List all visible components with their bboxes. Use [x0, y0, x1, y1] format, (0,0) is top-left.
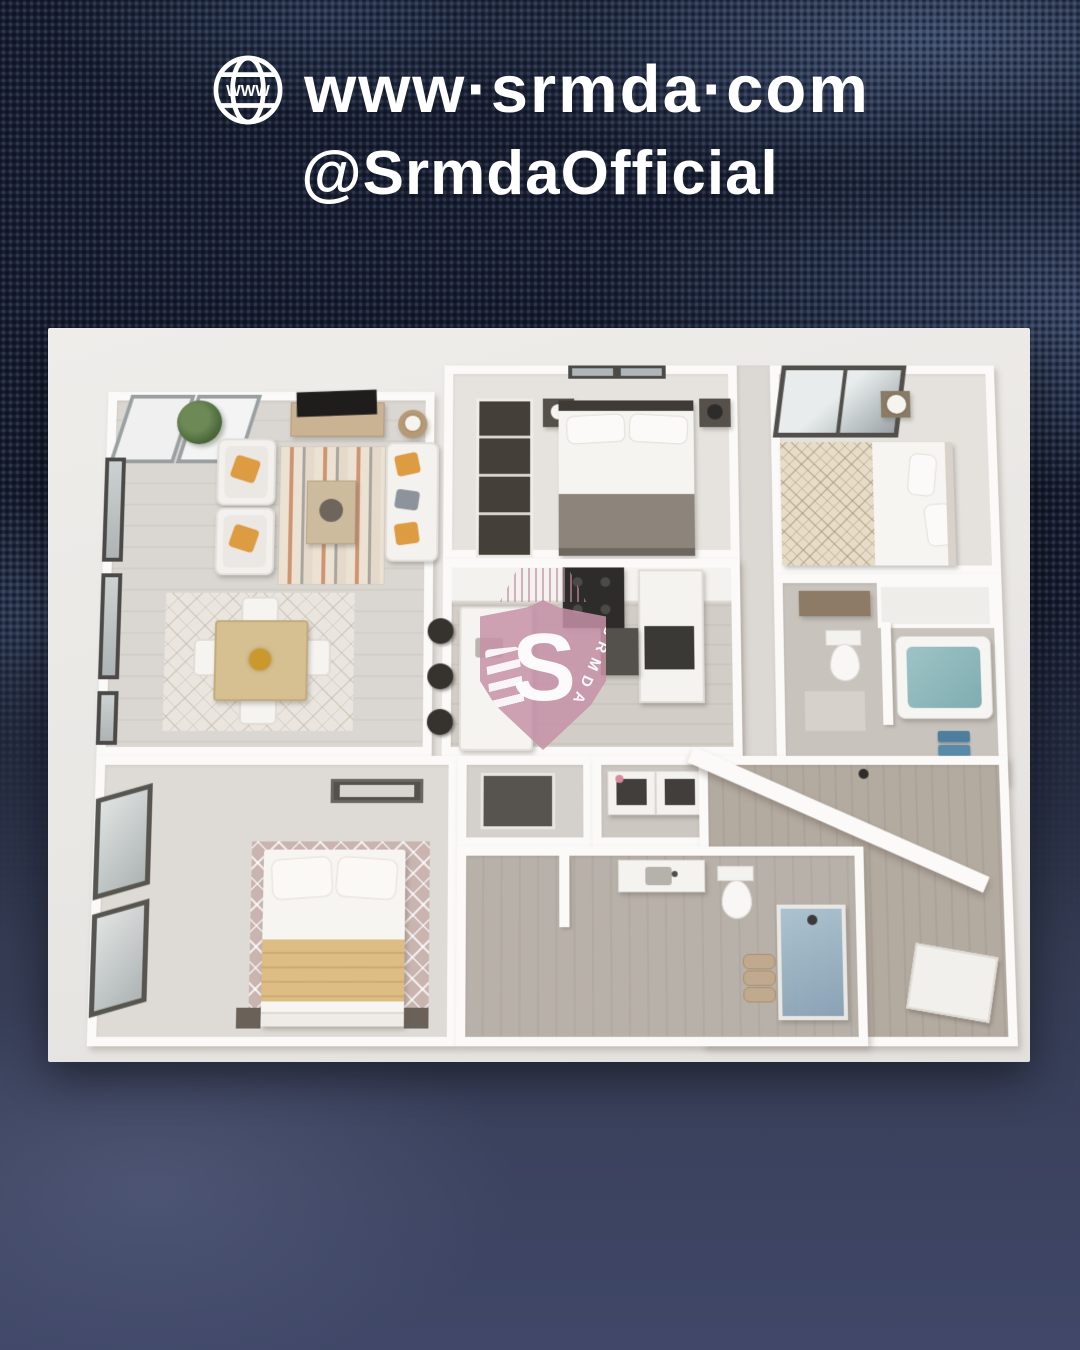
bathroom-partition-wall: [559, 856, 569, 927]
rolled-towel: [743, 954, 776, 969]
wardrobe-shelf: [479, 436, 530, 439]
pillow: [628, 413, 688, 445]
headboard: [559, 400, 694, 410]
slanted-window: [89, 898, 150, 1018]
svg-text:WWW: WWW: [226, 83, 270, 100]
gold-centerpiece: [249, 649, 271, 671]
wardrobe-shelf: [479, 474, 530, 477]
bar-stool: [427, 709, 453, 735]
tub-water: [906, 647, 982, 708]
table-tray: [319, 499, 343, 522]
wardrobe: [476, 399, 533, 558]
gray-blanket: [559, 494, 695, 548]
bed: [260, 850, 405, 1027]
left-window: [98, 573, 122, 679]
bedroom-2: [770, 366, 1001, 575]
faucet: [672, 871, 678, 877]
sliding-closet-door: [480, 773, 555, 829]
pillow: [271, 856, 334, 901]
ceiling-light: [331, 779, 424, 803]
bath-mat: [805, 691, 866, 731]
toilet: [721, 880, 752, 919]
bathroom-2: [456, 847, 868, 1047]
website-url: www·srmda·com: [304, 53, 870, 127]
rolled-towel: [743, 970, 776, 986]
wardrobe-shelf: [479, 512, 530, 515]
coffee-table: [306, 481, 356, 545]
closet: [457, 756, 592, 847]
window-glass: [572, 368, 613, 376]
bedroom-window: [568, 366, 666, 379]
burner: [600, 577, 610, 587]
bed: [780, 442, 956, 565]
footboard: [559, 548, 695, 556]
living-room: [96, 392, 434, 756]
watermark-shield: S SRMDA: [480, 600, 606, 750]
window-mullion: [836, 370, 847, 433]
bedroom-3: [87, 756, 458, 1046]
diamond-pattern-blanket: [780, 442, 875, 565]
door-mat: [906, 943, 998, 1023]
dining-chair: [239, 697, 278, 725]
website-line: WWW www·srmda·com: [0, 52, 1080, 128]
light-panel: [340, 785, 415, 797]
tall-counter: [638, 569, 705, 703]
television: [297, 390, 378, 417]
social-handle: @SrmdaOfficial: [0, 138, 1080, 209]
floor-plan-photo: S SRMDA: [48, 328, 1030, 1062]
post-header: WWW www·srmda·com @SrmdaOfficial: [0, 52, 1080, 209]
headboard: [945, 442, 957, 565]
pillow: [907, 452, 938, 497]
armchair: [214, 507, 275, 575]
window-glass: [621, 368, 662, 376]
pillow: [335, 856, 399, 901]
blue-towel: [938, 731, 970, 742]
dining-table: [213, 620, 308, 701]
detergent: [615, 775, 623, 783]
srmda-watermark: S SRMDA: [480, 594, 606, 750]
master-bed: [559, 400, 696, 555]
left-window: [96, 691, 119, 745]
master-bedroom: [443, 366, 740, 559]
orange-pillow: [394, 452, 421, 477]
dryer: [656, 771, 705, 815]
shower-head: [807, 915, 817, 925]
rolled-towel: [743, 987, 776, 1003]
sink: [645, 867, 671, 885]
blue-towel: [938, 745, 970, 756]
linen-alcove: [877, 583, 994, 628]
bathtub: [895, 636, 993, 719]
washer-door: [616, 779, 646, 805]
dark-side-table: [236, 1008, 261, 1029]
laundry-room: [592, 756, 710, 847]
dark-side-table: [404, 1008, 429, 1029]
armchair: [216, 438, 276, 505]
bedside-lamp: [707, 404, 723, 419]
glass-shower: [776, 905, 848, 1021]
bar-stool: [427, 663, 453, 689]
left-window: [102, 458, 126, 562]
orange-pillow: [394, 521, 420, 545]
vanity: [618, 860, 705, 893]
gray-pillow: [394, 489, 420, 511]
dark-cabinet: [601, 628, 639, 675]
globe-www-icon: WWW: [210, 52, 286, 128]
post-canvas: WWW www·srmda·com @SrmdaOfficial: [0, 0, 1080, 1350]
slanted-window: [93, 783, 153, 901]
footboard: [260, 1012, 404, 1027]
sofa: [385, 442, 439, 561]
gold-blanket: [261, 939, 405, 1001]
door-handle: [858, 769, 868, 779]
toilet-tank: [717, 866, 754, 881]
bathroom-partition-wall: [881, 622, 894, 725]
table-lamp: [405, 416, 421, 431]
wood-vanity: [799, 591, 871, 616]
dryer-door: [665, 779, 695, 805]
bar-stool: [428, 618, 454, 644]
fridge: [644, 626, 694, 669]
toilet: [830, 644, 861, 681]
bathroom-1: [774, 574, 1009, 784]
bedside-lamp: [886, 395, 906, 414]
pillow: [566, 413, 626, 445]
